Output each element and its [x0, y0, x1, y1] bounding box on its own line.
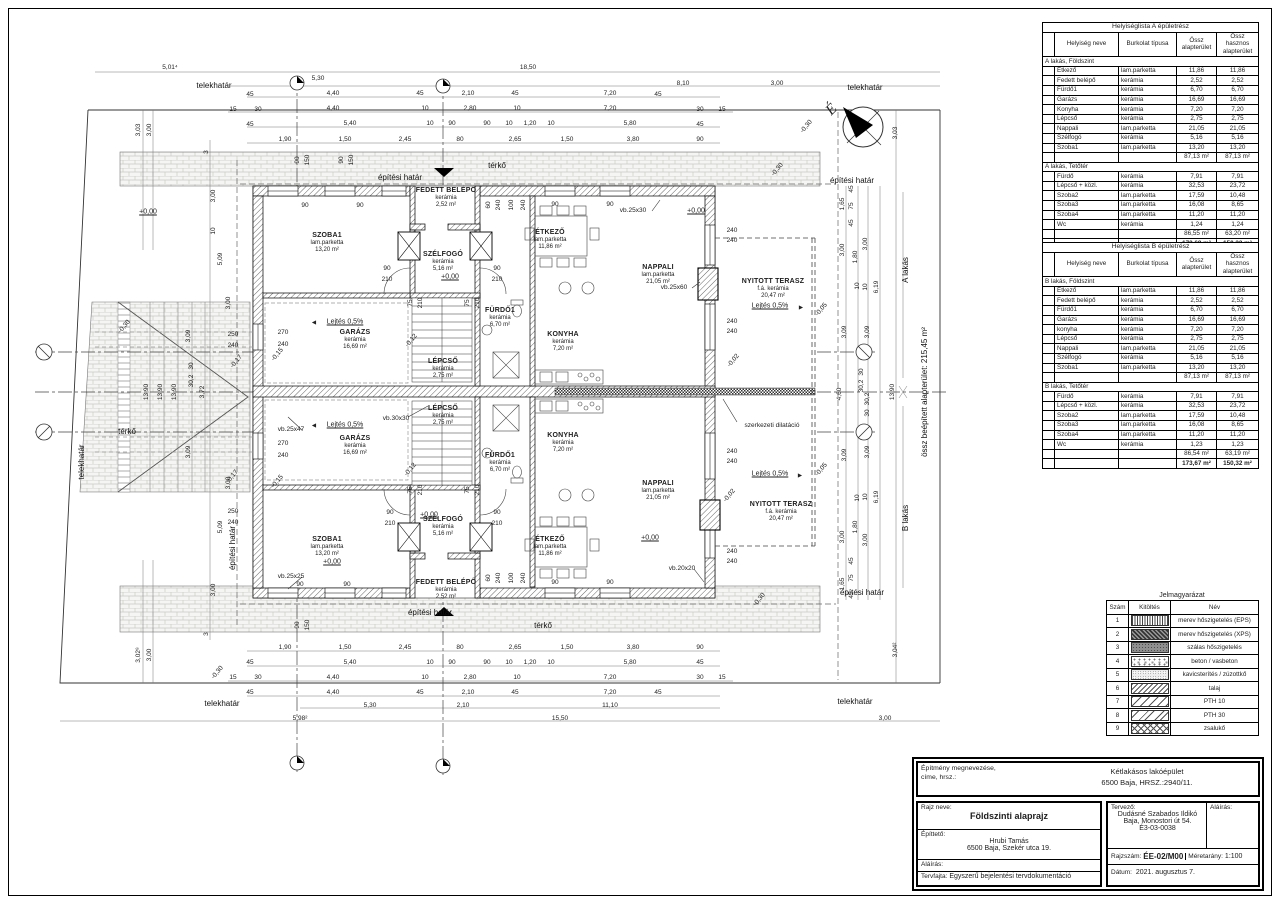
plan-type-label: Tervfajta: [921, 873, 947, 880]
title-block-left: Rajz neve: Földszinti alaprajz Építtető:… [916, 801, 1102, 887]
table-row: Lépcső + közl.kerámia32,5323,72 [1043, 401, 1259, 411]
table-a-col-room: Helyiség neve [1055, 32, 1119, 57]
legend-row: 2 merev hőszigetelés (XPS) [1107, 628, 1259, 642]
table-row: konyhakerámia7,207,20 [1043, 325, 1259, 335]
table-row: Szoba2lam.parketta17,5910,48 [1043, 191, 1259, 201]
title-block-right: Tervező: Dudásné Szabados Ildikó Baja, M… [1106, 801, 1260, 887]
legend-row: 4 beton / vasbeton [1107, 655, 1259, 669]
legend-pattern-swatch [1131, 669, 1169, 680]
table-b-section2: B lakás, Tetőtér [1043, 382, 1259, 392]
table-row: Étkezőlam.parketta11,8611,86 [1043, 286, 1259, 296]
table-row: Fedett belépőkerámia2,522,52 [1043, 76, 1259, 86]
table-row: Szoba3lam.parketta16,088,65 [1043, 201, 1259, 211]
client-address: 6500 Baja, Szekér utca 19. [921, 845, 1097, 852]
project-label: Építmény megnevezése,címe, hrsz.: [918, 763, 1036, 795]
table-row: Wckerámia1,231,23 [1043, 440, 1259, 450]
legend-row: 1 merev hőszigetelés (EPS) [1107, 614, 1259, 628]
title-block-project: Építmény megnevezése,címe, hrsz.: Kétlak… [916, 761, 1260, 797]
legend-pattern-swatch [1131, 615, 1169, 626]
legend-row: 3 szálas hőszigetelés [1107, 641, 1259, 655]
table-a-col-area: Össz alapterület [1177, 32, 1217, 57]
legend-title: Jelmagyarázat [1106, 592, 1258, 599]
table-row: Szoba3lam.parketta16,088,65 [1043, 421, 1259, 431]
designer-address: Baja, Monostori út 54. [1111, 818, 1204, 825]
north-compass-icon [843, 107, 883, 147]
drawing-name: Földszinti alaprajz [921, 811, 1097, 821]
table-row: Szélfogókerámia5,165,16 [1043, 353, 1259, 363]
room-list-table-a: Helyiséglista A épületrész Helyiség neve… [1042, 22, 1259, 249]
legend-pattern-swatch [1131, 629, 1169, 640]
table-row: Lépcsőkerámia2,752,75 [1043, 114, 1259, 124]
table-a-col-empty [1043, 32, 1055, 57]
table-a-section2: A lakás, Tetőtér [1043, 162, 1259, 172]
table-a-subtotal1: 87,13 m²87,13 m² [1043, 153, 1259, 163]
table-b-subtotal1: 87,13 m²87,13 m² [1043, 373, 1259, 383]
legend: Jelmagyarázat Szám Kitöltés Név 1 merev … [1106, 592, 1258, 736]
table-a-title: Helyiséglista A épületrész [1043, 23, 1259, 33]
legend-pattern-swatch [1131, 683, 1169, 694]
table-row: Fürdő1kerámia6,706,70 [1043, 85, 1259, 95]
designer-name: Dudásné Szabados Ildikó [1111, 811, 1204, 818]
drawing-name-label: Rajz neve: [921, 804, 952, 811]
table-row: Fürdőkerámia7,917,91 [1043, 172, 1259, 182]
legend-pattern-swatch [1131, 696, 1169, 707]
table-a-section1: A lakás, Földszint [1043, 57, 1259, 67]
table-row: Szélfogókerámia5,165,16 [1043, 133, 1259, 143]
table-row: Fürdőkerámia7,917,91 [1043, 392, 1259, 402]
drawing-number: ÉE-02/M00 [1143, 852, 1183, 861]
project-address: 6500 Baja, HRSZ.:2940/11. [1036, 777, 1258, 788]
table-row: Szoba1lam.parketta13,2013,20 [1043, 363, 1259, 373]
scale-label: Méretarány: [1185, 853, 1223, 860]
table-row: Fürdő1kerámia6,706,70 [1043, 305, 1259, 315]
table-row: Konyhakerámia7,207,20 [1043, 105, 1259, 115]
project-name: Kétlakásos lakóépület [1036, 766, 1258, 777]
table-a-subtotal2: 86,55 m²63,20 m² [1043, 229, 1259, 239]
client-label: Építtető: [921, 831, 945, 838]
table-b-total: 173,67 m²150,32 m² [1043, 459, 1259, 469]
table-row: Garázskerámia16,6916,69 [1043, 95, 1259, 105]
designer-label: Tervező: [1111, 804, 1136, 811]
table-b-title: Helyiséglista B épületrész [1043, 243, 1259, 253]
dilatation-joint [555, 388, 815, 395]
table-b-col-room: Helyiség neve [1055, 252, 1119, 277]
legend-col-fill: Kitöltés [1129, 601, 1171, 615]
table-row: Lépcső + közl.kerámia32,5323,72 [1043, 181, 1259, 191]
legend-row: 7 PTH 10 [1107, 695, 1259, 709]
table-row: Lépcsőkerámia2,752,75 [1043, 334, 1259, 344]
legend-col-num: Szám [1107, 601, 1129, 615]
legend-row: 6 talaj [1107, 682, 1259, 696]
scale-value: 1:100 [1225, 853, 1243, 860]
legend-pattern-swatch [1131, 723, 1169, 734]
legend-row: 9 zsalukő [1107, 722, 1259, 736]
designer-signature-label: Aláírás: [1206, 803, 1258, 849]
table-b-section1: B lakás, Földszint [1043, 277, 1259, 287]
table-row: Garázskerámia16,6916,69 [1043, 315, 1259, 325]
date-value: 2021. augusztus 7. [1136, 869, 1195, 876]
legend-pattern-swatch [1131, 642, 1169, 653]
table-b-subtotal2: 86,54 m²63,19 m² [1043, 449, 1259, 459]
legend-pattern-swatch [1131, 710, 1169, 721]
designer-license: É3-03-0038 [1111, 825, 1204, 832]
client-name: Hrubi Tamás [921, 838, 1097, 845]
table-row: Szoba1lam.parketta13,2013,20 [1043, 143, 1259, 153]
legend-row: 8 PTH 30 [1107, 709, 1259, 723]
table-row: Wckerámia1,241,24 [1043, 220, 1259, 230]
table-row: Nappalilam.parketta21,0521,05 [1043, 124, 1259, 134]
table-row: Szoba2lam.parketta17,5910,48 [1043, 411, 1259, 421]
legend-col-name: Név [1171, 601, 1259, 615]
room-list-table-b: Helyiséglista B épületrész Helyiség neve… [1042, 242, 1259, 469]
table-b-col-useful: Össz hasznos alapterület [1217, 252, 1259, 277]
table-row: Szoba4lam.parketta11,2011,20 [1043, 210, 1259, 220]
table-row: Fedett belépőkerámia2,522,52 [1043, 296, 1259, 306]
table-b-col-area: Össz alapterület [1177, 252, 1217, 277]
table-b-col-material: Burkolat típusa [1119, 252, 1177, 277]
date-label: Dátum: [1111, 869, 1132, 876]
table-a-col-material: Burkolat típusa [1119, 32, 1177, 57]
table-row: Szoba4lam.parketta11,2011,20 [1043, 430, 1259, 440]
table-row: Nappalilam.parketta21,0521,05 [1043, 344, 1259, 354]
table-b-col-empty [1043, 252, 1055, 277]
legend-pattern-swatch [1131, 656, 1169, 667]
architectural-drawing-page: telekhatártelekhatártelekhatártelekhatár… [0, 0, 1280, 904]
table-a-col-useful: Össz hasznos alapterület [1217, 32, 1259, 57]
drawing-number-label: Rajzszám: [1111, 853, 1141, 860]
title-block: Építmény megnevezése,címe, hrsz.: Kétlak… [912, 757, 1264, 891]
legend-row: 5 kavicsterítés / zúzottkő [1107, 668, 1259, 682]
table-row: Étkezőlam.parketta11,8611,86 [1043, 66, 1259, 76]
signature-label: Aláírás: [921, 861, 943, 868]
plan-type: Egyszerű bejelentési tervdokumentáció [949, 873, 1071, 880]
